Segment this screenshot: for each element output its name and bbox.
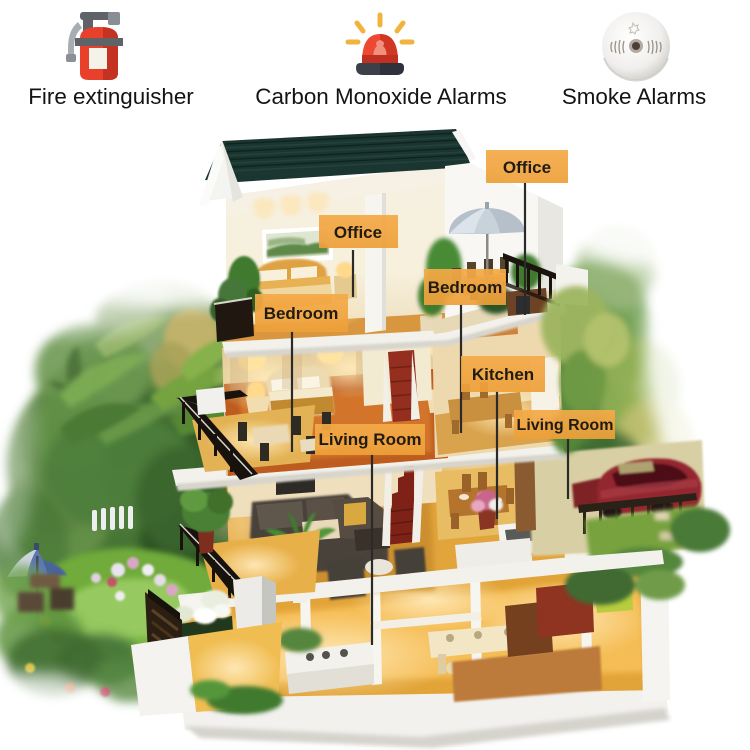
svg-text:Living Room: Living Room [319,430,422,449]
svg-text:Office: Office [334,223,382,242]
svg-text:Smoke Alarms: Smoke Alarms [562,84,706,109]
svg-text:Bedroom: Bedroom [428,278,503,297]
svg-text:Carbon Monoxide Alarms: Carbon Monoxide Alarms [255,84,506,109]
svg-text:Living Room: Living Room [517,417,614,434]
svg-text:Kitchen: Kitchen [472,365,534,384]
svg-text:Bedroom: Bedroom [264,304,339,323]
svg-text:Office: Office [503,158,551,177]
svg-text:Fire extinguisher: Fire extinguisher [28,84,194,109]
